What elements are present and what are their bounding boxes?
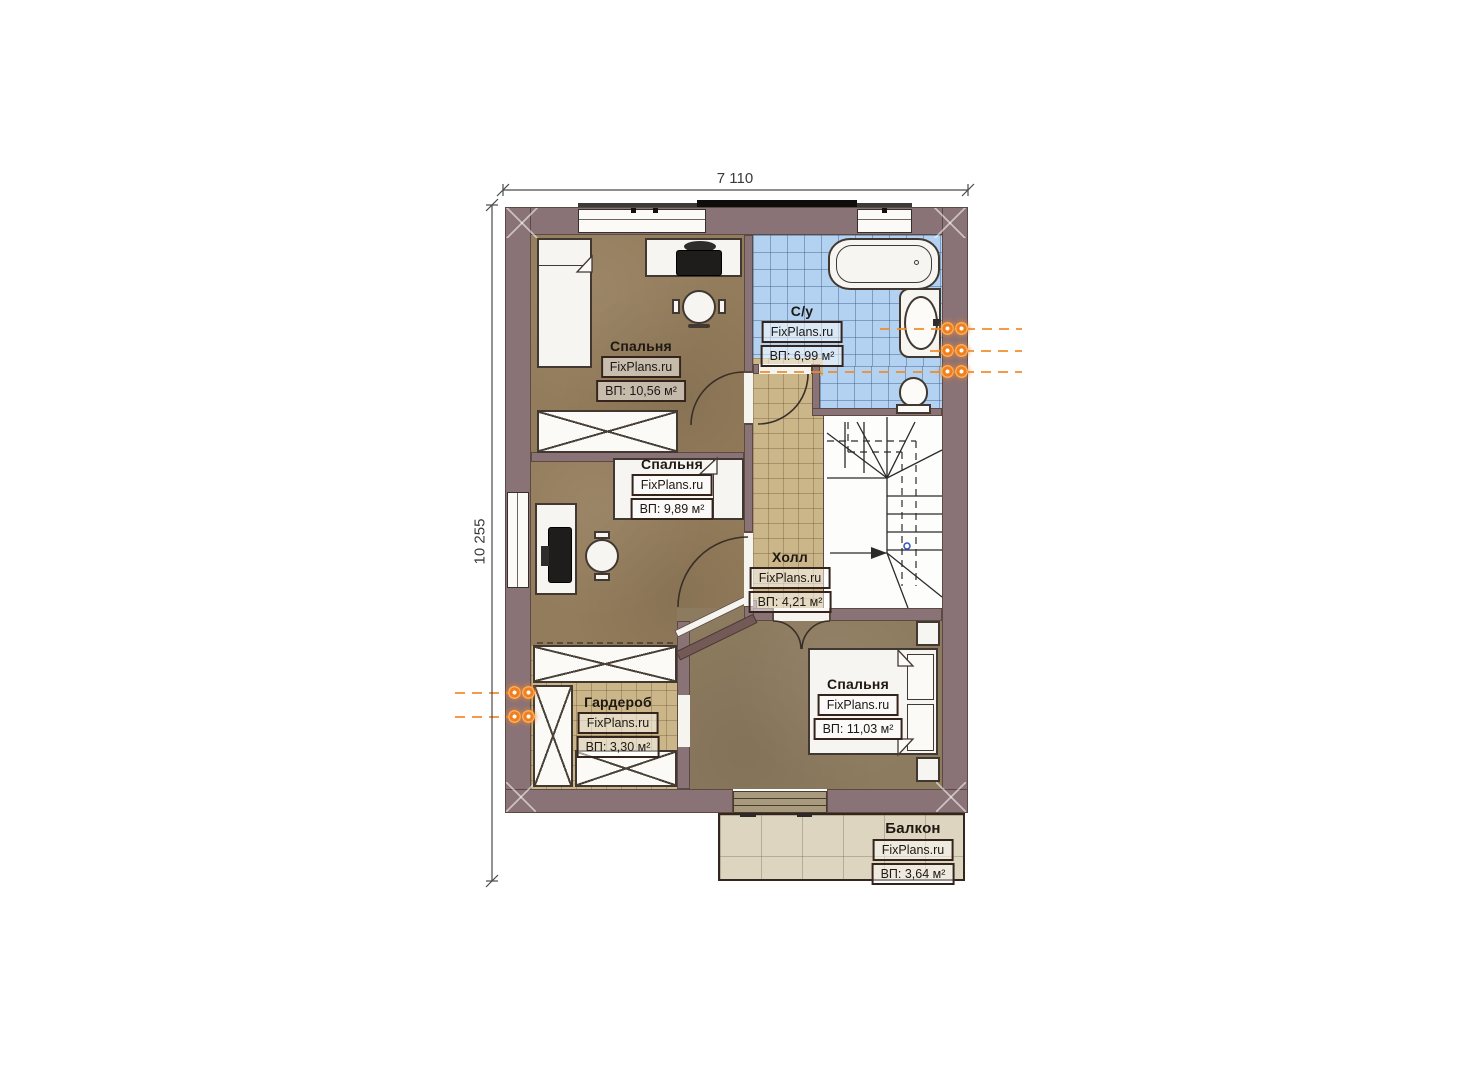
floor-plan-canvas: 7 110 10 255 Спальня FixPlans.ru ВП: 10,… <box>0 0 1473 1080</box>
wardrobe-opening <box>678 695 690 747</box>
chair-bedroom1 <box>682 290 716 324</box>
balcony-door <box>733 791 827 813</box>
chair-bedroom2 <box>585 539 619 573</box>
room-name: С/у <box>791 303 813 319</box>
room-area: ВП: 9,89 м² <box>631 498 714 520</box>
corner-hatch-top-right <box>934 208 966 238</box>
window-top-bathroom <box>857 209 912 233</box>
lintel-center <box>697 200 857 207</box>
balcony-mark-1 <box>740 814 756 817</box>
closet-wardrobe-top <box>533 645 677 683</box>
room-name: Спальня <box>610 338 672 354</box>
room-name: Спальня <box>827 676 889 692</box>
balcony-mark-2 <box>797 814 812 817</box>
toilet-bowl <box>899 377 928 407</box>
room-label-bedroom2: Спальня FixPlans.ru ВП: 9,89 м² <box>631 456 714 520</box>
utility-marker-left-2 <box>508 710 535 723</box>
wall-bathroom-jog <box>812 364 820 410</box>
lintel-window2 <box>857 203 912 207</box>
brand-watermark: FixPlans.ru <box>818 694 899 716</box>
room-label-bathroom: С/у FixPlans.ru ВП: 6,99 м² <box>761 303 844 367</box>
brand-watermark: FixPlans.ru <box>578 712 659 734</box>
pillow-2 <box>907 704 934 751</box>
corner-hatch-bottom-left <box>506 782 536 812</box>
brand-watermark: FixPlans.ru <box>632 474 713 496</box>
room-name: Гардероб <box>584 694 652 710</box>
bathtub <box>828 238 940 290</box>
wall-right <box>942 207 968 813</box>
utility-marker-left-1 <box>508 686 535 699</box>
room-name: Спальня <box>641 456 703 472</box>
dimension-left-label: 10 255 <box>472 502 489 582</box>
dimension-top-label: 7 110 <box>660 170 810 187</box>
utility-marker-right-2 <box>941 344 968 357</box>
corner-hatch-bottom-right <box>936 782 966 812</box>
bed-single-bedroom1 <box>537 238 592 368</box>
chair2-armrest-bottom <box>594 573 610 581</box>
brand-watermark: FixPlans.ru <box>750 567 831 589</box>
chair2-armrest-top <box>594 531 610 539</box>
utility-marker-right-3 <box>941 365 968 378</box>
lintel-window1 <box>578 203 706 207</box>
room-area: ВП: 4,21 м² <box>749 591 832 613</box>
closet-wardrobe-left <box>533 685 573 787</box>
pc-bedroom2 <box>541 546 549 566</box>
room-area: ВП: 6,99 м² <box>761 345 844 367</box>
pillow-1 <box>907 654 934 700</box>
valve-icon <box>941 344 954 357</box>
window-left-bedroom2 <box>507 492 529 588</box>
nightstand-top <box>916 621 940 646</box>
bedroom1-door-opening <box>744 372 753 424</box>
valve-icon <box>508 686 521 699</box>
room-area: ВП: 3,30 м² <box>577 736 660 758</box>
valve-icon <box>522 710 535 723</box>
valve-icon <box>508 710 521 723</box>
room-label-bedroom3: Спальня FixPlans.ru ВП: 11,03 м² <box>814 676 903 740</box>
brand-watermark: FixPlans.ru <box>873 839 954 861</box>
room-label-hall: Холл FixPlans.ru ВП: 4,21 м² <box>749 549 832 613</box>
room-name: Балкон <box>885 820 940 837</box>
corner-hatch-top-left <box>506 208 538 238</box>
toilet-tank <box>896 404 931 414</box>
brand-watermark: FixPlans.ru <box>762 321 843 343</box>
utility-marker-right-1 <box>941 322 968 335</box>
chair1-armrest-left <box>672 299 680 314</box>
room-label-wardrobe: Гардероб FixPlans.ru ВП: 3,30 м² <box>577 694 660 758</box>
wall-bedroom2-hall-upper <box>744 424 753 532</box>
room-area: ВП: 11,03 м² <box>814 718 903 740</box>
wall-bottom-left <box>505 789 733 813</box>
monitor-bedroom2 <box>548 527 572 583</box>
chair1-base <box>688 324 710 328</box>
closet-bedroom1 <box>537 410 678 453</box>
window-top-bedroom1 <box>578 209 706 233</box>
room-area: ВП: 3,64 м² <box>872 863 955 885</box>
room-label-bedroom1: Спальня FixPlans.ru ВП: 10,56 м² <box>596 338 686 402</box>
wall-bedroom3-top-right <box>830 608 942 621</box>
room-area: ВП: 10,56 м² <box>596 380 686 402</box>
valve-icon <box>955 344 968 357</box>
sink-tap <box>933 319 941 326</box>
valve-icon <box>522 686 535 699</box>
valve-icon <box>941 365 954 378</box>
brand-watermark: FixPlans.ru <box>601 356 682 378</box>
wall-bedroom1-hall <box>744 235 753 372</box>
room-name: Холл <box>772 549 808 565</box>
valve-icon <box>955 365 968 378</box>
room-label-balcony: Балкон FixPlans.ru ВП: 3,64 м² <box>872 820 955 885</box>
valve-icon <box>955 322 968 335</box>
chair1-armrest-right <box>718 299 726 314</box>
stairwell-floor <box>823 416 942 610</box>
nightstand-bottom <box>916 757 940 782</box>
printer-bedroom1 <box>676 250 722 276</box>
valve-icon <box>941 322 954 335</box>
